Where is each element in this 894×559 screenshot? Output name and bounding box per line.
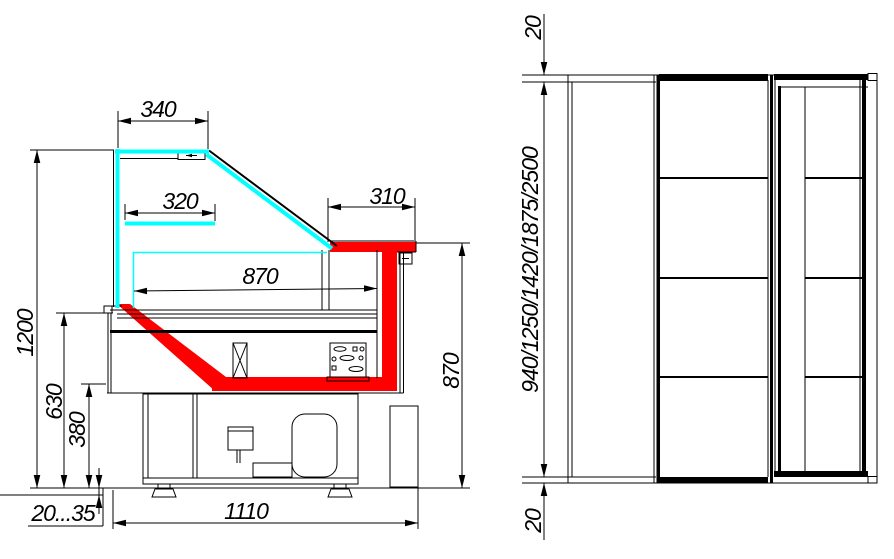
- dim-overall-height: 1200: [12, 308, 38, 356]
- side-section-view: 340 320 310 870 1200 630 380 20...35 111…: [0, 96, 470, 529]
- dim-display-depth: 870: [242, 263, 279, 289]
- dim-canopy-top: 340: [140, 96, 177, 122]
- dim-counter: 310: [369, 183, 406, 209]
- dim-counter-height: 870: [438, 352, 464, 389]
- plan-view: 20 940/1250/1420/1875/2500 20: [517, 14, 877, 540]
- dim-shelf: 320: [162, 188, 199, 214]
- dim-bottom-overhang: 20: [520, 508, 546, 534]
- dim-overall-depth: 1110: [224, 498, 269, 524]
- machine-compartment: [143, 394, 358, 478]
- technical-drawing: 340 320 310 870 1200 630 380 20...35 111…: [0, 0, 894, 559]
- glass-panels: [115, 149, 332, 308]
- dim-lengths: 940/1250/1420/1875/2500: [517, 146, 543, 393]
- dim-well-height: 380: [64, 411, 90, 448]
- adjustable-foot: [152, 484, 176, 497]
- dim-leg-adjust: 20...35: [30, 500, 96, 526]
- left-end-panel: [568, 75, 654, 483]
- adjustable-foot: [328, 484, 352, 497]
- drawing-svg: 340 320 310 870 1200 630 380 20...35 111…: [0, 0, 894, 559]
- plan-view-dimensions: 20 940/1250/1420/1875/2500 20: [517, 14, 572, 540]
- dim-top-overhang: 20: [520, 15, 546, 41]
- sliding-door-outer: [657, 74, 774, 483]
- electrical-panel: [327, 343, 369, 381]
- plan-structure: [568, 74, 877, 484]
- sliding-door-inner: [774, 74, 877, 484]
